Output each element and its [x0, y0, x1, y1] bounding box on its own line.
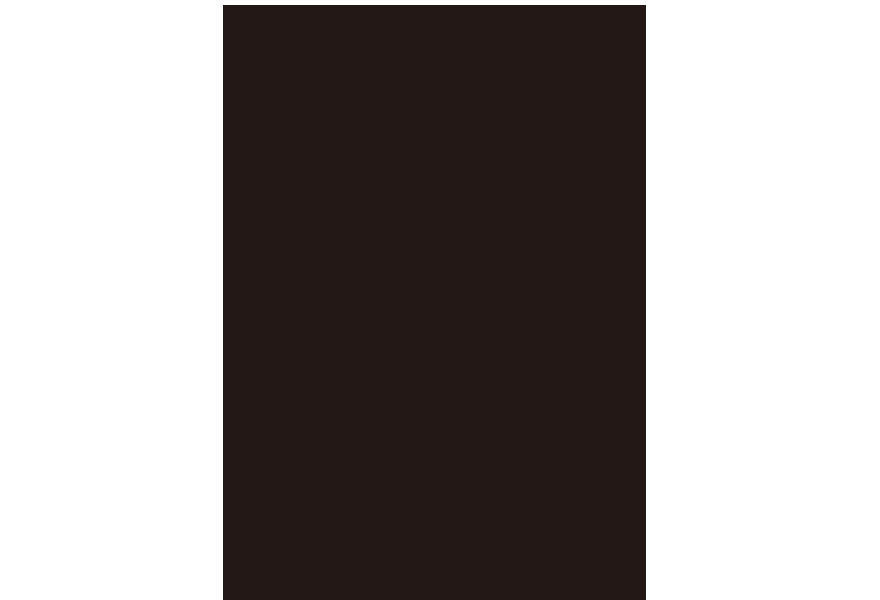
- document-page: [223, 5, 646, 600]
- viewer-canvas: [0, 0, 880, 600]
